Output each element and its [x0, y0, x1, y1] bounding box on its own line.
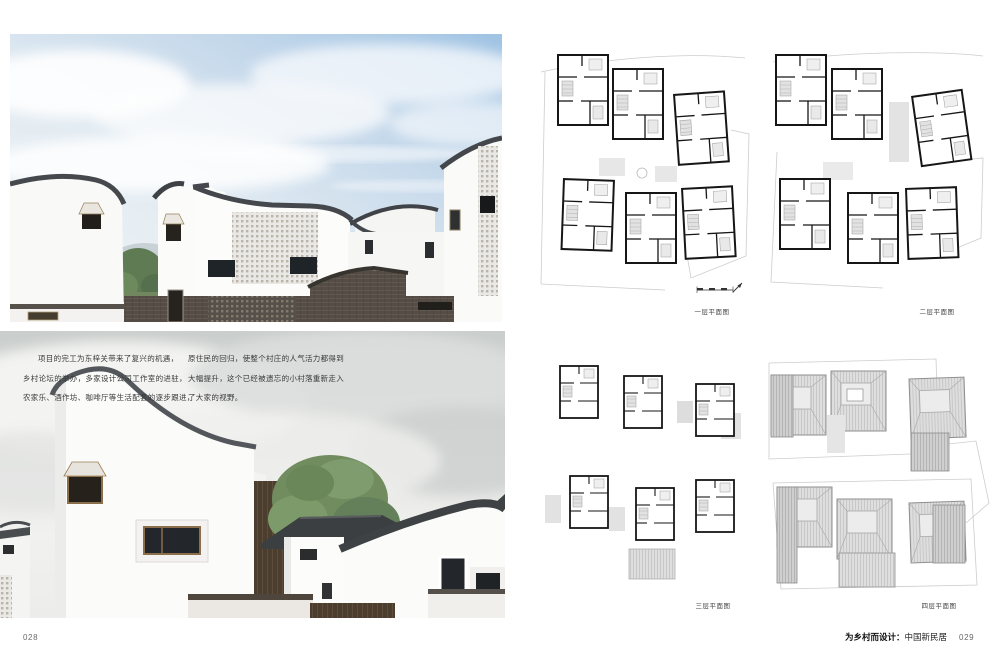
- floor-plan-fourth-drawing: [761, 353, 993, 593]
- paragraph-line: 农家乐、酒作坊、咖啡厅等生活配套的逐步跟进，: [23, 388, 195, 408]
- paragraph-column-1: 项目的完工为东梓关带来了复兴的机遇， 乡村论坛的举办，多家设计公司工作室的进驻，…: [23, 349, 195, 408]
- scale-bar-icon: [697, 287, 733, 294]
- paragraph-line: 大幅提升，这个已经被遗忘的小村落重新走入: [188, 369, 344, 389]
- caption-floor-plan-4: 四层平面图: [922, 600, 957, 610]
- paragraph-line: 项目的完工为东梓关带来了复兴的机遇，: [23, 349, 195, 369]
- floor-plan-third-drawing: [543, 353, 760, 593]
- footer-book-title: 中国新民居: [905, 631, 948, 643]
- paragraph-column-2: 原住民的回归，使整个村庄的人气活力都得到 大幅提升，这个已经被遗忘的小村落重新走…: [188, 349, 344, 408]
- caption-floor-plan-2: 二层平面图: [920, 306, 955, 316]
- floor-plan-first-drawing: [535, 38, 750, 300]
- footer: 为乡村而设计： 中国新民居 029: [845, 631, 974, 643]
- photo-village-blue-sky: [10, 34, 502, 322]
- paragraph-line: 原住民的回归，使整个村庄的人气活力都得到: [188, 349, 344, 369]
- left-page: 项目的完工为东梓关带来了复兴的机遇， 乡村论坛的举办，多家设计公司工作室的进驻，…: [0, 0, 505, 662]
- caption-floor-plan-3: 三层平面图: [696, 600, 731, 610]
- page-number-right: 029: [959, 633, 974, 642]
- page-number-left: 028: [23, 633, 38, 642]
- floor-plan-second-drawing: [763, 42, 990, 298]
- north-arrow-icon: [733, 283, 742, 292]
- paragraph-line: 乡村论坛的举办，多家设计公司工作室的进驻，: [23, 369, 195, 389]
- caption-floor-plan-1: 一层平面图: [695, 306, 730, 316]
- footer-series-title: 为乡村而设计：: [845, 631, 905, 643]
- paragraph-line: 了大家的视野。: [188, 388, 344, 408]
